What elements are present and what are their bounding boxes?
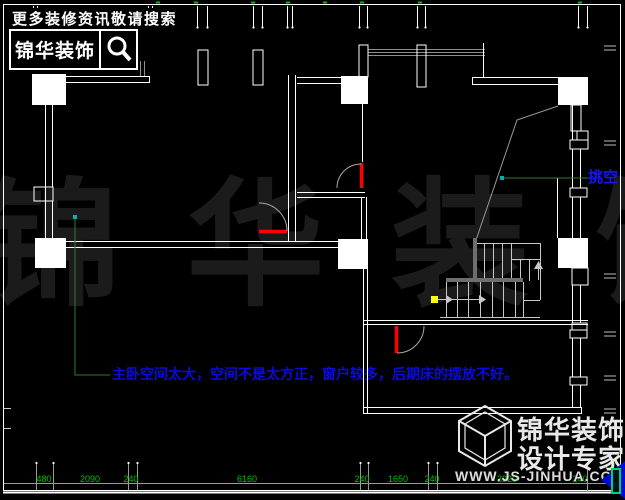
dimension-label: 2090 — [80, 474, 100, 484]
dimension-label: 6160 — [237, 474, 257, 484]
staircase — [437, 238, 543, 318]
brand-logo-cube-icon — [455, 404, 515, 474]
void-annotation: 挑空 — [588, 166, 618, 187]
leader-lines — [73, 176, 588, 375]
nav-arrow-bar — [611, 468, 621, 494]
brand-box: 锦华装饰 — [9, 29, 138, 70]
brand-website: WWW.JS-JINHUA.COM — [455, 468, 625, 484]
dimension-label: 240 — [354, 474, 369, 484]
dimension-label: 240 — [123, 474, 138, 484]
dimension-label: 480 — [36, 474, 51, 484]
void-diagonal-line — [475, 106, 558, 243]
wall-lines-bedroom — [30, 50, 338, 268]
search-hint-text: 更多装修资讯敬请搜索 — [12, 8, 177, 29]
wall-lines-middle-room — [297, 76, 368, 413]
brand-name: 锦华装饰 — [11, 31, 99, 68]
search-icon-cell — [99, 31, 136, 68]
bottom-tick-dots — [35, 462, 438, 464]
dimension-label: 1650 — [388, 474, 408, 484]
east-dash-marks — [604, 46, 616, 413]
dimension-label: 240 — [424, 474, 439, 484]
wall-lines-right-section — [359, 43, 588, 414]
cad-viewer: 锦 华 装 饰 主卧空间太大，空间不是太方正，窗户较多，后期床的摆放不好。 — [0, 0, 625, 500]
search-icon — [104, 34, 134, 66]
top-dimension-marks — [156, 2, 582, 4]
yellow-marker — [431, 296, 438, 303]
nav-arrow-icon[interactable] — [601, 461, 625, 499]
